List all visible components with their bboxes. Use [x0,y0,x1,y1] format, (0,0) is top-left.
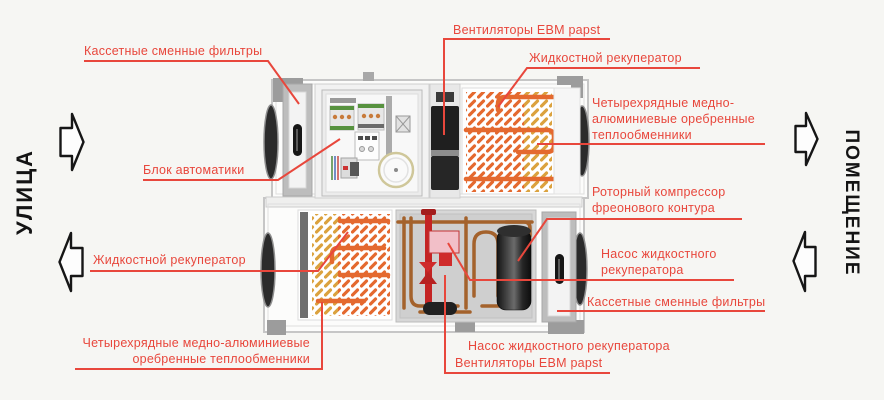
diagram-stage: УЛИЦА ПОМЕЩЕНИЕ Кассетные сменные фильтр… [0,0,884,400]
label-recuperator-pump-bottom: Насос жидкостного рекуператора [468,338,670,354]
muffler [423,302,457,315]
airflow-arrow-room-in-icon [794,111,819,167]
wire-duct [330,98,356,103]
filter-section-exhaust [542,212,576,322]
control-cabinet [315,84,429,198]
airflow-arrow-room-out-icon [792,230,817,293]
heat-exchanger-exhaust [298,210,392,320]
fan-module-2 [431,156,459,190]
blank-panel-top-right [554,88,580,194]
controller-module [355,132,379,160]
din-rail [386,96,392,158]
label-fans-supply: Вентиляторы EBM papst [453,22,600,38]
rotary-compressor [497,225,531,310]
label-heat-exchangers-exhaust: Четырехрядные медно-алюминиевые оребренн… [70,335,310,367]
tab-top [363,72,374,81]
round-dial [379,153,413,187]
label-automation-unit: Блок автоматики [143,162,244,178]
compressor-compartment [396,209,536,322]
label-liquid-recuperator-supply: Жидкостной рекуператор [529,50,682,66]
label-liquid-recuperator-exhaust: Жидкостной рекуператор [93,252,246,268]
room-label: ПОМЕЩЕНИЕ [840,129,862,276]
airflow-arrow-street-in-icon [59,112,85,172]
label-rotary-compressor: Роторный компрессор фреонового контура [592,184,725,216]
foot-left [267,320,286,335]
label-recuperator-pump-right: Насос жидкостного рекуператора [601,246,717,278]
airflow-arrow-street-out-icon [58,231,84,293]
street-label: УЛИЦА [12,149,38,235]
label-heat-exchangers-supply: Четырехрядные медно- алюминиевые оребрен… [592,95,755,143]
duct-opening-top-left [264,105,278,179]
vent-grille [396,116,410,132]
leader-filters-supply [84,61,299,104]
label-cassette-filters-supply: Кассетные сменные фильтры [84,43,262,59]
label-fans-exhaust: Вентиляторы EBM papst [455,355,602,371]
heat-exchanger-supply [462,88,580,194]
label-cassette-filters-exhaust: Кассетные сменные фильтры [587,294,765,310]
ahu-unit [261,72,589,335]
